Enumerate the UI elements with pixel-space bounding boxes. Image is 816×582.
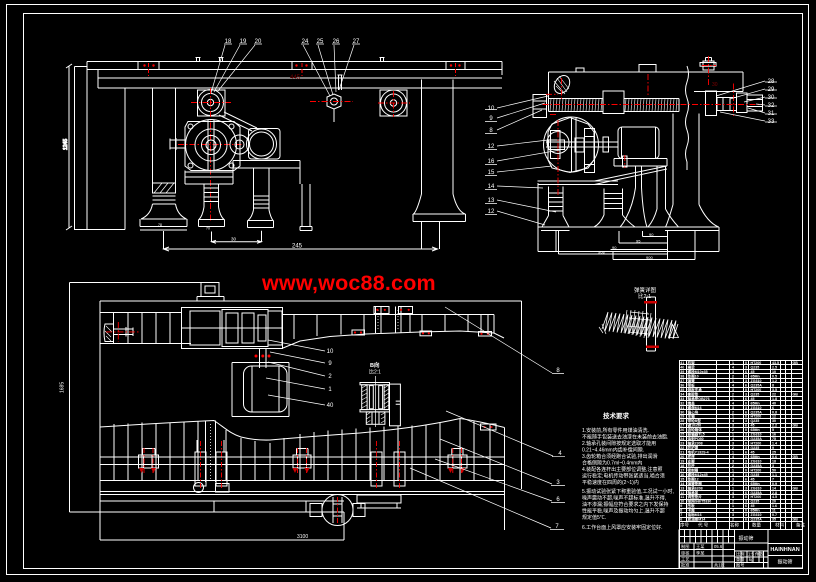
svg-text:审核: 审核 bbox=[681, 550, 690, 557]
svg-text:备注: 备注 bbox=[796, 522, 805, 529]
svg-text:筛网GB/T5330: 筛网GB/T5330 bbox=[688, 499, 712, 504]
svg-text:螺栓M10x35: 螺栓M10x35 bbox=[688, 369, 708, 374]
svg-text:橡胶垫: 橡胶垫 bbox=[687, 391, 699, 396]
svg-text:1: 1 bbox=[732, 397, 734, 401]
svg-text:油封PD50: 油封PD50 bbox=[688, 436, 704, 441]
svg-text:ZG310: ZG310 bbox=[751, 513, 762, 517]
svg-text:防护罩: 防护罩 bbox=[688, 445, 699, 450]
svg-text:GB: GB bbox=[793, 455, 799, 459]
svg-text:43.5: 43.5 bbox=[772, 361, 779, 365]
svg-text:10: 10 bbox=[680, 500, 684, 504]
svg-text:振动筛: 振动筛 bbox=[738, 535, 753, 542]
svg-text:78: 78 bbox=[158, 223, 162, 227]
svg-text:油标M16: 油标M16 bbox=[688, 512, 702, 517]
svg-text:0.5: 0.5 bbox=[772, 375, 777, 379]
svg-text:ZG310: ZG310 bbox=[751, 433, 762, 437]
svg-text:40: 40 bbox=[680, 366, 684, 370]
svg-text:0: 0 bbox=[745, 442, 747, 446]
svg-text:B向: B向 bbox=[370, 361, 380, 369]
svg-text:3: 3 bbox=[732, 495, 734, 499]
svg-text:1: 1 bbox=[732, 468, 734, 472]
svg-text:17: 17 bbox=[680, 468, 684, 472]
svg-text:性能平稳,噪声及振动均匀上,温升不超: 性能平稳,噪声及振动均匀上,温升不超 bbox=[582, 508, 665, 515]
svg-text:2: 2 bbox=[732, 482, 734, 486]
svg-text:电机Y132S-4: 电机Y132S-4 bbox=[688, 450, 709, 455]
svg-text:技术要求: 技术要求 bbox=[603, 411, 630, 420]
svg-text:8: 8 bbox=[680, 509, 682, 513]
svg-text:ZG310: ZG310 bbox=[751, 406, 762, 410]
svg-text:0: 0 bbox=[745, 455, 747, 459]
svg-text:32: 32 bbox=[680, 401, 684, 405]
svg-text:垫圈10: 垫圈10 bbox=[688, 374, 699, 379]
svg-text:6: 6 bbox=[680, 518, 682, 522]
svg-text:900: 900 bbox=[646, 255, 653, 260]
svg-text:GB: GB bbox=[793, 392, 799, 396]
svg-text:GB: GB bbox=[793, 361, 799, 365]
svg-text:9: 9 bbox=[680, 504, 682, 508]
svg-text:0.21~4.46mm内齿补偿间隙.: 0.21~4.46mm内齿补偿间隙. bbox=[582, 447, 644, 454]
svg-text:比2:1: 比2:1 bbox=[638, 292, 651, 300]
svg-text:3: 3 bbox=[732, 477, 734, 481]
svg-text:19: 19 bbox=[680, 460, 684, 464]
svg-text:垫圈12: 垫圈12 bbox=[688, 476, 699, 481]
svg-text:李某: 李某 bbox=[696, 550, 705, 557]
svg-text:序号: 序号 bbox=[680, 522, 689, 529]
svg-text:1: 1 bbox=[732, 361, 734, 365]
svg-text:3: 3 bbox=[745, 392, 747, 396]
svg-text:1.安装前,所有零件用煤油清洗.: 1.安装前,所有零件用煤油清洗. bbox=[582, 427, 649, 434]
svg-text:8: 8 bbox=[772, 383, 774, 387]
svg-text:偏心块: 偏心块 bbox=[688, 409, 699, 414]
svg-text:38: 38 bbox=[680, 375, 684, 379]
svg-text:卡箍: 卡箍 bbox=[688, 508, 696, 513]
svg-text:HAINHNAN: HAINHNAN bbox=[770, 547, 799, 553]
svg-text:22: 22 bbox=[772, 392, 776, 396]
svg-text:轴承2308: 轴承2308 bbox=[688, 441, 703, 446]
svg-text:2: 2 bbox=[732, 428, 734, 432]
svg-text:Q235: Q235 bbox=[751, 473, 760, 477]
svg-text:13: 13 bbox=[488, 198, 495, 204]
svg-text:36: 36 bbox=[680, 383, 684, 387]
svg-text:90: 90 bbox=[612, 245, 617, 250]
svg-text:25: 25 bbox=[680, 433, 684, 437]
svg-text:24: 24 bbox=[680, 437, 684, 441]
svg-text:Q235: Q235 bbox=[751, 446, 760, 450]
svg-text:3: 3 bbox=[732, 370, 734, 374]
svg-text:HT200: HT200 bbox=[751, 388, 762, 392]
svg-text:工艺: 工艺 bbox=[681, 557, 689, 562]
svg-text:65Mn: 65Mn bbox=[751, 455, 760, 459]
svg-text:29: 29 bbox=[680, 415, 684, 419]
svg-text:33: 33 bbox=[680, 397, 684, 401]
svg-text:横梁: 横梁 bbox=[688, 365, 696, 370]
svg-text:1: 1 bbox=[732, 451, 734, 455]
svg-text:6: 6 bbox=[745, 464, 747, 468]
svg-text:0.9: 0.9 bbox=[772, 482, 777, 486]
svg-text:14: 14 bbox=[488, 184, 495, 190]
svg-text:2: 2 bbox=[732, 375, 734, 379]
svg-text:6.工作台面上风罩应安装牢固定位好.: 6.工作台面上风罩应安装牢固定位好. bbox=[582, 524, 663, 531]
svg-text:27: 27 bbox=[680, 424, 684, 428]
svg-text:1: 1 bbox=[732, 486, 734, 490]
svg-text:Q235A: Q235A bbox=[751, 491, 763, 495]
svg-text:材料: 材料 bbox=[775, 522, 784, 529]
svg-text:4: 4 bbox=[732, 509, 734, 513]
svg-text:螺母M16: 螺母M16 bbox=[688, 405, 702, 410]
svg-text:1.2: 1.2 bbox=[772, 379, 777, 383]
svg-text:45: 45 bbox=[751, 397, 755, 401]
svg-text:9: 9 bbox=[772, 446, 774, 450]
svg-text:6: 6 bbox=[745, 451, 747, 455]
svg-text:1: 1 bbox=[732, 433, 734, 437]
svg-text:39: 39 bbox=[680, 370, 684, 374]
svg-text:16: 16 bbox=[772, 433, 776, 437]
svg-text:Q235A: Q235A bbox=[751, 383, 763, 387]
svg-text:4: 4 bbox=[732, 455, 734, 459]
svg-text:45: 45 bbox=[751, 504, 755, 508]
svg-text:4: 4 bbox=[732, 473, 734, 477]
svg-text:kg: kg bbox=[749, 557, 754, 562]
svg-text:25: 25 bbox=[772, 451, 776, 455]
svg-text:螺栓M12x45: 螺栓M12x45 bbox=[688, 472, 708, 477]
svg-text:1: 1 bbox=[732, 379, 734, 383]
svg-text:密封圈: 密封圈 bbox=[687, 467, 699, 472]
svg-text:3100: 3100 bbox=[297, 534, 308, 540]
svg-text:弹簧: 弹簧 bbox=[688, 378, 696, 383]
svg-text:3: 3 bbox=[732, 460, 734, 464]
svg-text:0: 0 bbox=[745, 415, 747, 419]
svg-text:3: 3 bbox=[745, 366, 747, 370]
svg-text:ZG310: ZG310 bbox=[751, 460, 762, 464]
svg-text:70: 70 bbox=[206, 227, 210, 231]
svg-text:11: 11 bbox=[680, 495, 684, 499]
svg-text:35: 35 bbox=[772, 518, 776, 522]
svg-text:6: 6 bbox=[745, 370, 747, 374]
svg-text:34: 34 bbox=[680, 392, 684, 396]
svg-text:0: 0 bbox=[745, 495, 747, 499]
svg-text:1: 1 bbox=[732, 415, 734, 419]
svg-text:4: 4 bbox=[732, 419, 734, 423]
svg-text:15: 15 bbox=[680, 477, 684, 481]
svg-text:Q235A: Q235A bbox=[751, 437, 763, 441]
svg-text:30: 30 bbox=[231, 237, 237, 242]
svg-text:40: 40 bbox=[327, 403, 334, 409]
svg-text:65Mn: 65Mn bbox=[751, 428, 760, 432]
svg-text:6: 6 bbox=[745, 518, 747, 522]
svg-text:21: 21 bbox=[680, 451, 684, 455]
svg-text:1245: 1245 bbox=[63, 139, 69, 150]
svg-text:键10x50: 键10x50 bbox=[687, 423, 702, 428]
svg-text:3.齿轮箱合须经跑合试验,排出润滑: 3.齿轮箱合须经跑合试验,排出润滑 bbox=[582, 453, 658, 460]
svg-text:45: 45 bbox=[751, 451, 755, 455]
svg-text:3: 3 bbox=[732, 442, 734, 446]
svg-text:0: 0 bbox=[745, 428, 747, 432]
svg-text:轴承座GB276: 轴承座GB276 bbox=[688, 396, 710, 401]
svg-text:1.4: 1.4 bbox=[772, 442, 777, 446]
svg-text:4: 4 bbox=[732, 383, 734, 387]
svg-text:运行稳定;电机传动带张紧适当,啮合须: 运行稳定;电机传动带张紧适当,啮合须 bbox=[582, 473, 665, 480]
svg-text:3: 3 bbox=[732, 424, 734, 428]
svg-text:2: 2 bbox=[732, 464, 734, 468]
svg-text:50: 50 bbox=[772, 468, 776, 472]
svg-text:6: 6 bbox=[745, 410, 747, 414]
svg-text:批准: 批准 bbox=[681, 562, 689, 569]
svg-text:2.2: 2.2 bbox=[772, 424, 777, 428]
svg-text:3: 3 bbox=[745, 433, 747, 437]
svg-text:Q235A: Q235A bbox=[751, 410, 763, 414]
svg-text:机架: 机架 bbox=[687, 360, 696, 365]
svg-text:6: 6 bbox=[745, 477, 747, 481]
svg-text:3: 3 bbox=[745, 500, 747, 504]
svg-text:轴承盖: 轴承盖 bbox=[688, 490, 699, 495]
svg-text:14: 14 bbox=[772, 486, 776, 490]
svg-text:18: 18 bbox=[680, 464, 684, 468]
svg-text:2.8: 2.8 bbox=[772, 491, 777, 495]
svg-text:30: 30 bbox=[772, 419, 776, 423]
svg-text:41: 41 bbox=[680, 361, 684, 365]
svg-text:0: 0 bbox=[745, 361, 747, 365]
svg-text:数量: 数量 bbox=[752, 522, 761, 529]
svg-text:制图: 制图 bbox=[681, 543, 689, 550]
svg-text:6: 6 bbox=[745, 437, 747, 441]
svg-text:筛板: 筛板 bbox=[688, 382, 696, 387]
svg-text:1.6: 1.6 bbox=[772, 504, 777, 508]
svg-text:95: 95 bbox=[636, 238, 641, 243]
svg-text:2: 2 bbox=[732, 500, 734, 504]
svg-text:HT200: HT200 bbox=[751, 415, 762, 419]
svg-text:12: 12 bbox=[488, 209, 495, 215]
svg-text:14: 14 bbox=[680, 482, 684, 486]
svg-text:30: 30 bbox=[680, 410, 684, 414]
svg-text:2: 2 bbox=[732, 410, 734, 414]
svg-text:3.5: 3.5 bbox=[772, 388, 777, 392]
svg-text:7: 7 bbox=[680, 513, 682, 517]
svg-text:2.轴承孔装间隙按规定选取才能用: 2.轴承孔装间隙按规定选取才能用 bbox=[582, 440, 656, 447]
svg-text:3: 3 bbox=[745, 460, 747, 464]
svg-text:7: 7 bbox=[772, 477, 774, 481]
svg-text:平稳速度在四周的(2~1)内: 平稳速度在四周的(2~1)内 bbox=[582, 479, 639, 486]
svg-text:16: 16 bbox=[488, 159, 495, 165]
svg-text:3: 3 bbox=[745, 486, 747, 490]
svg-text:6: 6 bbox=[745, 504, 747, 508]
svg-text:16: 16 bbox=[680, 473, 684, 477]
svg-text:www,woc88.com: www,woc88.com bbox=[261, 271, 436, 295]
svg-text:名称: 名称 bbox=[730, 522, 739, 529]
svg-text:代 号: 代 号 bbox=[698, 522, 709, 529]
svg-text:20: 20 bbox=[680, 455, 684, 459]
svg-text:3: 3 bbox=[745, 406, 747, 410]
svg-text:ZG310: ZG310 bbox=[751, 486, 762, 490]
svg-text:2: 2 bbox=[732, 392, 734, 396]
svg-text:1: 1 bbox=[732, 504, 734, 508]
svg-text:05.6: 05.6 bbox=[714, 544, 723, 549]
svg-text:0.7: 0.7 bbox=[772, 513, 777, 517]
svg-text:22: 22 bbox=[680, 446, 684, 450]
svg-text:1.8: 1.8 bbox=[772, 397, 777, 401]
svg-text:45: 45 bbox=[751, 477, 755, 481]
svg-text:5.振动试验张紧下称重验值,工况试一小时,: 5.振动试验张紧下称重验值,工况试一小时, bbox=[582, 488, 674, 495]
svg-text:15: 15 bbox=[488, 170, 495, 176]
svg-text:件数: 件数 bbox=[755, 551, 764, 558]
svg-text:端盖: 端盖 bbox=[688, 400, 696, 405]
svg-text:90: 90 bbox=[649, 232, 654, 237]
svg-text:10: 10 bbox=[327, 349, 334, 355]
svg-text:Q235: Q235 bbox=[751, 500, 760, 504]
svg-text:6: 6 bbox=[772, 406, 774, 410]
svg-text:规定值5℃.: 规定值5℃. bbox=[582, 514, 606, 521]
svg-text:0: 0 bbox=[745, 482, 747, 486]
svg-text:45: 45 bbox=[751, 370, 755, 374]
svg-text:3: 3 bbox=[772, 464, 774, 468]
svg-text:5: 5 bbox=[772, 428, 774, 432]
svg-text:振动筛: 振动筛 bbox=[777, 559, 792, 566]
svg-text:Q235A: Q235A bbox=[751, 518, 763, 522]
svg-text:0: 0 bbox=[745, 401, 747, 405]
svg-text:1685: 1685 bbox=[60, 382, 66, 393]
svg-text:4: 4 bbox=[732, 491, 734, 495]
svg-text:35: 35 bbox=[680, 388, 684, 392]
svg-text:6: 6 bbox=[745, 491, 747, 495]
svg-text:20: 20 bbox=[772, 500, 776, 504]
svg-text:2.5: 2.5 bbox=[772, 366, 777, 370]
svg-text:轴承6208: 轴承6208 bbox=[688, 485, 703, 490]
svg-text:445: 445 bbox=[290, 75, 301, 81]
svg-text:3: 3 bbox=[745, 379, 747, 383]
svg-text:4: 4 bbox=[732, 366, 734, 370]
svg-text:0: 0 bbox=[745, 375, 747, 379]
svg-text:4.5: 4.5 bbox=[772, 495, 777, 499]
svg-text:245: 245 bbox=[292, 244, 303, 250]
svg-text:4.装配各连杆出主要部位调整,注意照: 4.装配各连杆出主要部位调整,注意照 bbox=[582, 466, 663, 473]
svg-text:6: 6 bbox=[745, 383, 747, 387]
svg-text:3: 3 bbox=[745, 473, 747, 477]
svg-text:共1张: 共1张 bbox=[714, 562, 726, 569]
svg-text:压板: 压板 bbox=[688, 503, 696, 508]
svg-text:GB: GB bbox=[793, 518, 799, 522]
svg-text:Q235A: Q235A bbox=[751, 464, 763, 468]
svg-text:23: 23 bbox=[680, 442, 684, 446]
svg-text:75: 75 bbox=[772, 437, 776, 441]
svg-text:1.1: 1.1 bbox=[772, 473, 777, 477]
svg-text:HT200: HT200 bbox=[751, 361, 762, 365]
svg-text:3: 3 bbox=[745, 419, 747, 423]
svg-text:HT200: HT200 bbox=[751, 468, 762, 472]
svg-text:油不渗漏;振幅应符合要求之内下发保持: 油不渗漏;振幅应符合要求之内下发保持 bbox=[582, 501, 668, 508]
svg-text:不能随手包装送去油漆在未装前去油脂.: 不能随手包装送去油漆在未装前去油脂. bbox=[582, 434, 668, 441]
svg-text:HT200: HT200 bbox=[751, 442, 762, 446]
svg-text:Q235: Q235 bbox=[751, 419, 760, 423]
svg-text:0: 0 bbox=[745, 509, 747, 513]
svg-text:30: 30 bbox=[712, 82, 718, 88]
svg-text:12: 12 bbox=[772, 415, 776, 419]
svg-text:65Mn: 65Mn bbox=[751, 375, 760, 379]
svg-text:弹簧垫圈: 弹簧垫圈 bbox=[688, 481, 703, 486]
svg-text:65Mn: 65Mn bbox=[751, 482, 760, 486]
svg-text:1:5: 1:5 bbox=[748, 552, 754, 557]
svg-text:3: 3 bbox=[745, 446, 747, 450]
svg-text:合格侧隙为0.7ml~0.4mm内: 合格侧隙为0.7ml~0.4mm内 bbox=[582, 460, 642, 467]
svg-text:底座: 底座 bbox=[687, 454, 696, 459]
svg-text:0.6: 0.6 bbox=[772, 455, 777, 459]
svg-text:2: 2 bbox=[732, 518, 734, 522]
svg-text:HT200: HT200 bbox=[751, 495, 762, 499]
svg-text:31: 31 bbox=[680, 406, 684, 410]
svg-text:13: 13 bbox=[680, 486, 684, 490]
svg-text:28: 28 bbox=[680, 419, 684, 423]
svg-text:45: 45 bbox=[751, 424, 755, 428]
svg-text:Q235: Q235 bbox=[751, 392, 760, 396]
svg-text:37: 37 bbox=[680, 379, 684, 383]
svg-text:GB: GB bbox=[793, 486, 799, 490]
svg-text:调整垫片: 调整垫片 bbox=[688, 494, 703, 499]
svg-text:3: 3 bbox=[732, 406, 734, 410]
svg-text:0.8: 0.8 bbox=[772, 410, 777, 414]
svg-text:侧板支承: 侧板支承 bbox=[688, 387, 703, 392]
svg-text:10: 10 bbox=[488, 106, 495, 112]
svg-text:拉杆: 拉杆 bbox=[688, 463, 696, 468]
svg-text:GB: GB bbox=[793, 424, 799, 428]
svg-text:40: 40 bbox=[772, 401, 776, 405]
svg-text:6: 6 bbox=[745, 397, 747, 401]
svg-text:11: 11 bbox=[772, 509, 776, 513]
svg-text:Q235: Q235 bbox=[751, 366, 760, 370]
svg-text:4: 4 bbox=[732, 401, 734, 405]
svg-text:放油塞M14: 放油塞M14 bbox=[687, 517, 706, 522]
svg-text:0: 0 bbox=[745, 388, 747, 392]
svg-text:65Mn: 65Mn bbox=[751, 509, 760, 513]
svg-text:3: 3 bbox=[732, 388, 734, 392]
svg-text:3: 3 bbox=[732, 513, 734, 517]
svg-text:65Mn: 65Mn bbox=[751, 401, 760, 405]
svg-text:弹簧详图: 弹簧详图 bbox=[634, 286, 657, 294]
svg-text:比2:1: 比2:1 bbox=[369, 369, 381, 376]
svg-text:6: 6 bbox=[745, 424, 747, 428]
svg-text:噪声震动不超,噪声不超标准,温升不得,: 噪声震动不超,噪声不超标准,温升不得, bbox=[582, 495, 666, 502]
svg-text:ZG310: ZG310 bbox=[751, 379, 762, 383]
svg-text:联轴器TL5: 联轴器TL5 bbox=[688, 432, 705, 437]
svg-text:18: 18 bbox=[772, 460, 776, 464]
svg-text:0: 0 bbox=[745, 468, 747, 472]
svg-text:齿轮箱体: 齿轮箱体 bbox=[688, 427, 703, 432]
svg-text:主轴: 主轴 bbox=[688, 414, 696, 419]
svg-text:2: 2 bbox=[732, 446, 734, 450]
svg-text:带轮B型: 带轮B型 bbox=[688, 418, 702, 423]
svg-text:908: 908 bbox=[598, 249, 605, 254]
svg-text:12: 12 bbox=[680, 491, 684, 495]
svg-text:4: 4 bbox=[732, 437, 734, 441]
svg-text:3: 3 bbox=[745, 513, 747, 517]
svg-text:26: 26 bbox=[680, 428, 684, 432]
svg-text:10: 10 bbox=[772, 370, 776, 374]
svg-text:12: 12 bbox=[488, 144, 495, 150]
svg-text:支脚: 支脚 bbox=[687, 459, 696, 464]
